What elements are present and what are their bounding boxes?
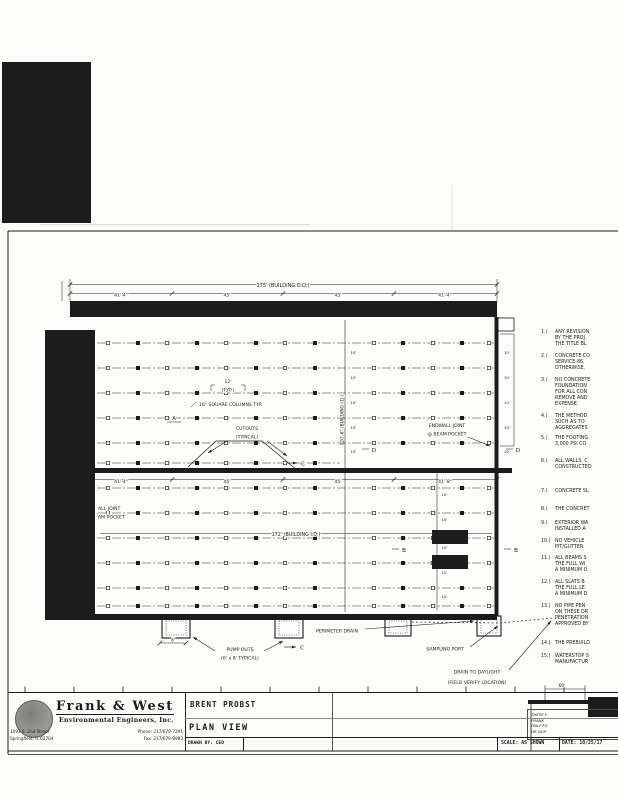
- dim-bay: 45': [223, 293, 230, 299]
- column-marker: [195, 461, 198, 464]
- dim-row-spacing: 10': [351, 425, 357, 430]
- column-marker: [254, 391, 257, 394]
- dim-row-spacing: 10': [504, 350, 510, 355]
- sheet-title: PLAN VIEW: [189, 723, 249, 733]
- note-number: 6.): [541, 459, 547, 465]
- dim-row-spacing: 10': [351, 449, 357, 454]
- column-marker: [136, 391, 139, 394]
- column-marker: [106, 461, 109, 464]
- column-marker: [283, 511, 286, 514]
- pump-out-notch-inner: [279, 621, 299, 635]
- dim-row-spacing: 10': [442, 570, 448, 575]
- column-marker: [106, 536, 109, 539]
- column-marker: [313, 441, 316, 444]
- label-cutouts-typical: (TYPICAL): [236, 435, 258, 441]
- note-number: 3.): [541, 378, 547, 384]
- arrowhead: [494, 626, 498, 630]
- column-marker: [106, 416, 109, 419]
- column-marker: [283, 561, 286, 564]
- dim-bay: 41'-8": [438, 479, 452, 485]
- column-marker: [487, 561, 490, 564]
- dim-bay: 41'-4": [114, 293, 128, 299]
- general-note: 15.)WATERSTOP SMANUFACTUR: [541, 654, 618, 666]
- general-note: 4.)THE METHODSUCH AS TOAGGREGATES: [541, 414, 618, 432]
- dim-8ft: 8': [171, 638, 175, 643]
- column-marker: [487, 536, 490, 539]
- column-marker: [283, 586, 286, 589]
- column-marker: [460, 341, 463, 344]
- column-marker: [195, 511, 198, 514]
- label-square-columns: 16" SQUARE COLUMNS TYP.: [199, 402, 262, 408]
- column-marker: [372, 366, 375, 369]
- column-marker: [431, 416, 434, 419]
- column-marker: [195, 586, 198, 589]
- column-marker: [460, 391, 463, 394]
- label-beam-pocket-lower: AM POCKET: [98, 515, 125, 521]
- general-note: 10.)NO VEHICLEPIT/GUTTER: [541, 539, 618, 551]
- column-marker: [372, 536, 375, 539]
- column-marker: [224, 341, 227, 344]
- label-drain-to-daylight: DRAIN TO DAYLIGHT: [454, 670, 501, 676]
- label-sampling-port: SAMPLING PORT: [426, 647, 463, 653]
- drawing-sheet: 175' (BUILDING O.D.)41'-4"45'45'41'-4"13…: [0, 0, 618, 800]
- column-marker: [401, 341, 404, 344]
- column-marker: [165, 511, 168, 514]
- plan-view-drawing: 175' (BUILDING O.D.)41'-4"45'45'41'-4"13…: [0, 0, 618, 800]
- dim-row-spacing: 10': [504, 425, 510, 430]
- column-marker: [283, 441, 286, 444]
- redaction-box-right-2: [432, 555, 468, 569]
- column-marker: [460, 511, 463, 514]
- label-perimeter-drain: PERIMETER DRAIN: [316, 629, 358, 635]
- middle-wall: [70, 468, 512, 473]
- column-marker: [165, 391, 168, 394]
- column-marker: [313, 511, 316, 514]
- column-marker: [460, 416, 463, 419]
- column-marker: [372, 441, 375, 444]
- column-marker: [254, 416, 257, 419]
- company-phone: Phone: 217/679-7291: [100, 729, 183, 735]
- column-marker: [195, 561, 198, 564]
- column-marker: [106, 586, 109, 589]
- section-marker-d: D: [372, 448, 376, 454]
- general-note: 9.)EXTERIOR WAINSTALLED A: [541, 521, 618, 533]
- column-marker: [372, 416, 375, 419]
- title-block-row-line: [185, 737, 618, 738]
- scan-smudge: [40, 224, 310, 226]
- column-marker: [224, 486, 227, 489]
- title-block-top-line: [8, 692, 618, 693]
- column-marker: [313, 416, 316, 419]
- arrowhead: [208, 450, 212, 453]
- section-marker-b: B: [514, 548, 518, 554]
- column-marker: [254, 441, 257, 444]
- title-block-cell-line: [497, 737, 498, 751]
- column-marker: [283, 366, 286, 369]
- column-marker: [283, 461, 286, 464]
- title-block-row-line: [185, 718, 618, 719]
- company-address-2: Springfield, IL 62704: [10, 736, 53, 742]
- dim-row-spacing: 10': [351, 350, 357, 355]
- column-marker: [165, 461, 168, 464]
- column-marker: [165, 604, 168, 607]
- leader: [365, 621, 474, 629]
- dim-row-spacing: 10': [442, 594, 448, 599]
- label-12ft: 12': [224, 379, 231, 385]
- column-marker: [372, 511, 375, 514]
- column-marker: [224, 511, 227, 514]
- column-marker: [254, 461, 257, 464]
- title-block-divider: [185, 692, 186, 751]
- column-marker: [106, 341, 109, 344]
- column-marker: [401, 441, 404, 444]
- bottom-wall: [70, 614, 497, 620]
- note-number: 2.): [541, 354, 547, 360]
- column-marker: [136, 561, 139, 564]
- note-line: OTHERWISE.: [555, 366, 618, 372]
- note-line: PIT/GUTTER: [555, 545, 618, 551]
- dim-building-id: 172' (BUILDING I.D.): [272, 532, 321, 538]
- right-wall: [495, 317, 499, 616]
- column-marker: [224, 604, 227, 607]
- label-endwall-joint: ENDWALL JOINT: [429, 423, 466, 429]
- column-marker: [401, 536, 404, 539]
- general-note: 5.)THE FOOTING3,000 PSI CO: [541, 436, 618, 448]
- column-marker: [195, 366, 198, 369]
- column-marker: [401, 391, 404, 394]
- note-number: 8.): [541, 507, 547, 513]
- column-marker: [431, 486, 434, 489]
- title-block-divider: [332, 692, 333, 751]
- arrowhead: [283, 452, 287, 456]
- general-note: 1.)ANY REVISIONBY THE PROJTHE TITLE BL: [541, 330, 618, 348]
- column-marker: [401, 416, 404, 419]
- dim-row-spacing: 10': [442, 545, 448, 550]
- company-fax: Fax: 217/679-8983: [100, 736, 183, 742]
- general-note: 14.)THE PREBUILD: [541, 641, 618, 647]
- column-marker: [313, 461, 316, 464]
- general-note: 8.)THE CONCRET: [541, 507, 618, 513]
- column-marker: [487, 366, 490, 369]
- title-block-cell-line: [243, 737, 244, 751]
- column-marker: [136, 604, 139, 607]
- note-line: A MINIMUM D: [555, 592, 618, 598]
- note-line: A MINIMUM O: [555, 568, 618, 574]
- column-marker: [165, 366, 168, 369]
- note-line: CONSTRUCTED: [555, 465, 618, 471]
- dim-bay: 45': [223, 479, 230, 485]
- drawn-by: DRAWN BY: CED: [188, 741, 224, 746]
- dim-building-od: 175' (BUILDING O.D.): [256, 283, 309, 289]
- column-marker: [372, 586, 375, 589]
- column-marker: [106, 441, 109, 444]
- column-marker: [136, 416, 139, 419]
- note-number: 13.): [541, 604, 551, 610]
- label-pump-outs-size: (6' x 8' TYPICAL): [221, 656, 259, 662]
- dim-row-spacing: 10': [442, 517, 448, 522]
- column-marker: [283, 416, 286, 419]
- column-marker: [431, 604, 434, 607]
- dim-bay: 45': [334, 479, 341, 485]
- dim-row-spacing: 10': [351, 375, 357, 380]
- column-marker: [254, 604, 257, 607]
- general-note: 3.)NO CONCRETEFOUNDATIONFOR ALL CONREMOV…: [541, 378, 618, 408]
- pump-out-notch-inner: [166, 621, 186, 635]
- column-marker: [254, 561, 257, 564]
- dim-building-id-vertical: 120'-6" (BUILDING I.D.): [340, 394, 346, 445]
- column-marker: [487, 416, 490, 419]
- note-number: 11.): [541, 556, 551, 562]
- column-marker: [401, 486, 404, 489]
- general-note: 6.)ALL WALLS, CCONSTRUCTED: [541, 459, 618, 471]
- column-marker: [224, 461, 227, 464]
- note-number: 14.): [541, 641, 551, 647]
- column-marker: [372, 486, 375, 489]
- column-marker: [106, 366, 109, 369]
- column-marker: [136, 366, 139, 369]
- label-pump-outs: PUMP OUTS: [226, 647, 253, 653]
- section-marker-a: A: [172, 416, 176, 422]
- label-field-verify: (FIELD VERIFY LOCATION): [448, 680, 507, 686]
- note-number: 4.): [541, 414, 547, 420]
- dim-row-spacing: 10': [504, 400, 510, 405]
- note-line: MANUFACTUR: [555, 660, 618, 666]
- column-marker: [487, 391, 490, 394]
- column-marker: [165, 416, 168, 419]
- column-marker: [460, 366, 463, 369]
- column-marker: [487, 486, 490, 489]
- general-note: 7.)CONCRETE SL: [541, 489, 618, 495]
- column-marker: [401, 561, 404, 564]
- column-marker: [401, 604, 404, 607]
- column-marker: [224, 586, 227, 589]
- company-name: Frank & West: [56, 699, 174, 715]
- note-line: THE PREBUILD: [555, 641, 618, 647]
- note-number: 12.): [541, 580, 551, 586]
- column-marker: [460, 441, 463, 444]
- arrowhead: [193, 637, 197, 640]
- column-marker: [106, 486, 109, 489]
- column-marker: [254, 536, 257, 539]
- dim-bay: 45': [334, 293, 341, 299]
- column-marker: [224, 536, 227, 539]
- column-marker: [431, 341, 434, 344]
- column-marker: [487, 604, 490, 607]
- title-block-cell-line: [559, 737, 560, 751]
- column-marker: [254, 366, 257, 369]
- dim-building-od-vertical: 131'-8" (BUILDING O.D.): [48, 435, 54, 488]
- label-typ: (TYP.): [222, 388, 235, 394]
- general-note: 2.)CONCRETE COSERVICE-86,OTHERWISE.: [541, 354, 618, 372]
- column-marker: [195, 486, 198, 489]
- column-marker: [195, 416, 198, 419]
- column-marker: [372, 391, 375, 394]
- column-marker: [431, 586, 434, 589]
- column-marker: [313, 604, 316, 607]
- note-number: 1.): [541, 330, 547, 336]
- note-number: 7.): [541, 489, 547, 495]
- column-marker: [431, 391, 434, 394]
- label-beam-pocket: @ BEAM POCKET: [428, 432, 467, 438]
- column-marker: [254, 341, 257, 344]
- column-marker: [106, 391, 109, 394]
- column-marker: [136, 536, 139, 539]
- general-note: 12.)ALL SLATS BTHE FULL LEA MINIMUM D: [541, 580, 618, 598]
- column-marker: [136, 341, 139, 344]
- column-marker: [313, 586, 316, 589]
- date-field: DATE: 10/25/17: [562, 741, 602, 746]
- section-marker-b: B: [402, 548, 406, 554]
- column-marker: [487, 586, 490, 589]
- column-marker: [313, 486, 316, 489]
- note-line: APPROVED BY: [555, 622, 618, 628]
- cutout-outline: [188, 441, 297, 470]
- section-marker-c: C: [300, 646, 304, 652]
- dim-row-spacing: 10': [504, 375, 510, 380]
- project-name: BRENT PROBST: [190, 700, 256, 709]
- column-marker: [165, 341, 168, 344]
- column-marker: [136, 486, 139, 489]
- company-subtitle: Environmental Engineers, Inc.: [59, 717, 174, 724]
- column-marker: [195, 441, 198, 444]
- company-address-1: 1092 S. 2nd Street: [10, 729, 49, 735]
- note-number: 10.): [541, 539, 551, 545]
- column-marker: [313, 561, 316, 564]
- column-marker: [136, 586, 139, 589]
- dim-row-spacing: 10': [351, 400, 357, 405]
- perimeter-drain-notch-inner: [481, 619, 497, 633]
- column-marker: [313, 366, 316, 369]
- column-marker: [431, 511, 434, 514]
- column-marker: [431, 366, 434, 369]
- column-marker: [401, 511, 404, 514]
- column-marker: [372, 604, 375, 607]
- column-marker: [401, 366, 404, 369]
- column-marker: [165, 441, 168, 444]
- column-marker: [165, 536, 168, 539]
- column-marker: [460, 486, 463, 489]
- note-number: 15.): [541, 654, 551, 660]
- column-marker: [254, 586, 257, 589]
- redaction-box-right-1: [432, 530, 468, 544]
- note-line: EXPENSE.: [555, 402, 618, 408]
- column-marker: [165, 586, 168, 589]
- arrowhead: [293, 462, 297, 465]
- column-marker: [165, 561, 168, 564]
- dim-row-spacing: 10': [442, 492, 448, 497]
- column-marker: [313, 391, 316, 394]
- column-marker: [195, 341, 198, 344]
- column-marker: [195, 391, 198, 394]
- column-marker: [487, 511, 490, 514]
- column-marker: [372, 561, 375, 564]
- dim-bay: 41'-4": [114, 479, 128, 485]
- top-wall: [70, 301, 497, 317]
- column-marker: [195, 604, 198, 607]
- column-marker: [283, 604, 286, 607]
- column-marker: [136, 441, 139, 444]
- arrowhead: [279, 641, 283, 644]
- column-marker: [106, 561, 109, 564]
- column-marker: [283, 341, 286, 344]
- column-marker: [224, 416, 227, 419]
- note-line: THE CONCRET: [555, 507, 618, 513]
- disclaimer-box: THESE FFRANKONLY FOOR DUP: [527, 709, 618, 740]
- note-number: 5.): [541, 436, 547, 442]
- general-notes-column: 1.)ANY REVISIONBY THE PROJTHE TITLE BL2.…: [541, 0, 618, 760]
- column-marker: [460, 586, 463, 589]
- label-wall-joint: ALL JOINT: [98, 506, 120, 512]
- general-note: 11.)ALL BEAMS STHE FULL WIA MINIMUM O: [541, 556, 618, 574]
- section-marker-c: C: [301, 462, 305, 468]
- arrowhead: [292, 646, 296, 649]
- note-line: 3,000 PSI CO: [555, 442, 618, 448]
- redaction-box-top-left: [2, 62, 91, 223]
- note-line: INSTALLED A: [555, 527, 618, 533]
- dim-row-spacing: 10': [504, 449, 510, 454]
- label-cutouts: CUTOUTS: [236, 426, 258, 432]
- note-number: 9.): [541, 521, 547, 527]
- column-marker: [460, 604, 463, 607]
- column-marker: [165, 486, 168, 489]
- column-marker: [224, 366, 227, 369]
- note-line: CONCRETE SL: [555, 489, 618, 495]
- beam-pocket-box: [497, 318, 514, 331]
- column-marker: [401, 586, 404, 589]
- column-marker: [487, 341, 490, 344]
- note-line: THE TITLE BL: [555, 342, 618, 348]
- section-marker-d: D: [516, 448, 520, 454]
- column-marker: [136, 461, 139, 464]
- column-marker: [195, 536, 198, 539]
- column-marker: [106, 604, 109, 607]
- leader-hook: [191, 402, 196, 407]
- disclaimer-line: OR DUP: [531, 729, 618, 735]
- dim-bay: 41'-4": [438, 293, 452, 299]
- column-marker: [224, 561, 227, 564]
- column-marker: [372, 341, 375, 344]
- column-marker: [254, 486, 257, 489]
- note-line: AGGREGATES: [555, 426, 618, 432]
- column-marker: [136, 511, 139, 514]
- column-marker: [283, 486, 286, 489]
- general-note: 13.)NO PIPE PENON THESE DRPENETRATIONAPP…: [541, 604, 618, 628]
- column-marker: [283, 391, 286, 394]
- scale-field: SCALE: AS SHOWN: [501, 741, 544, 746]
- column-marker: [431, 441, 434, 444]
- column-marker: [313, 341, 316, 344]
- column-marker: [254, 511, 257, 514]
